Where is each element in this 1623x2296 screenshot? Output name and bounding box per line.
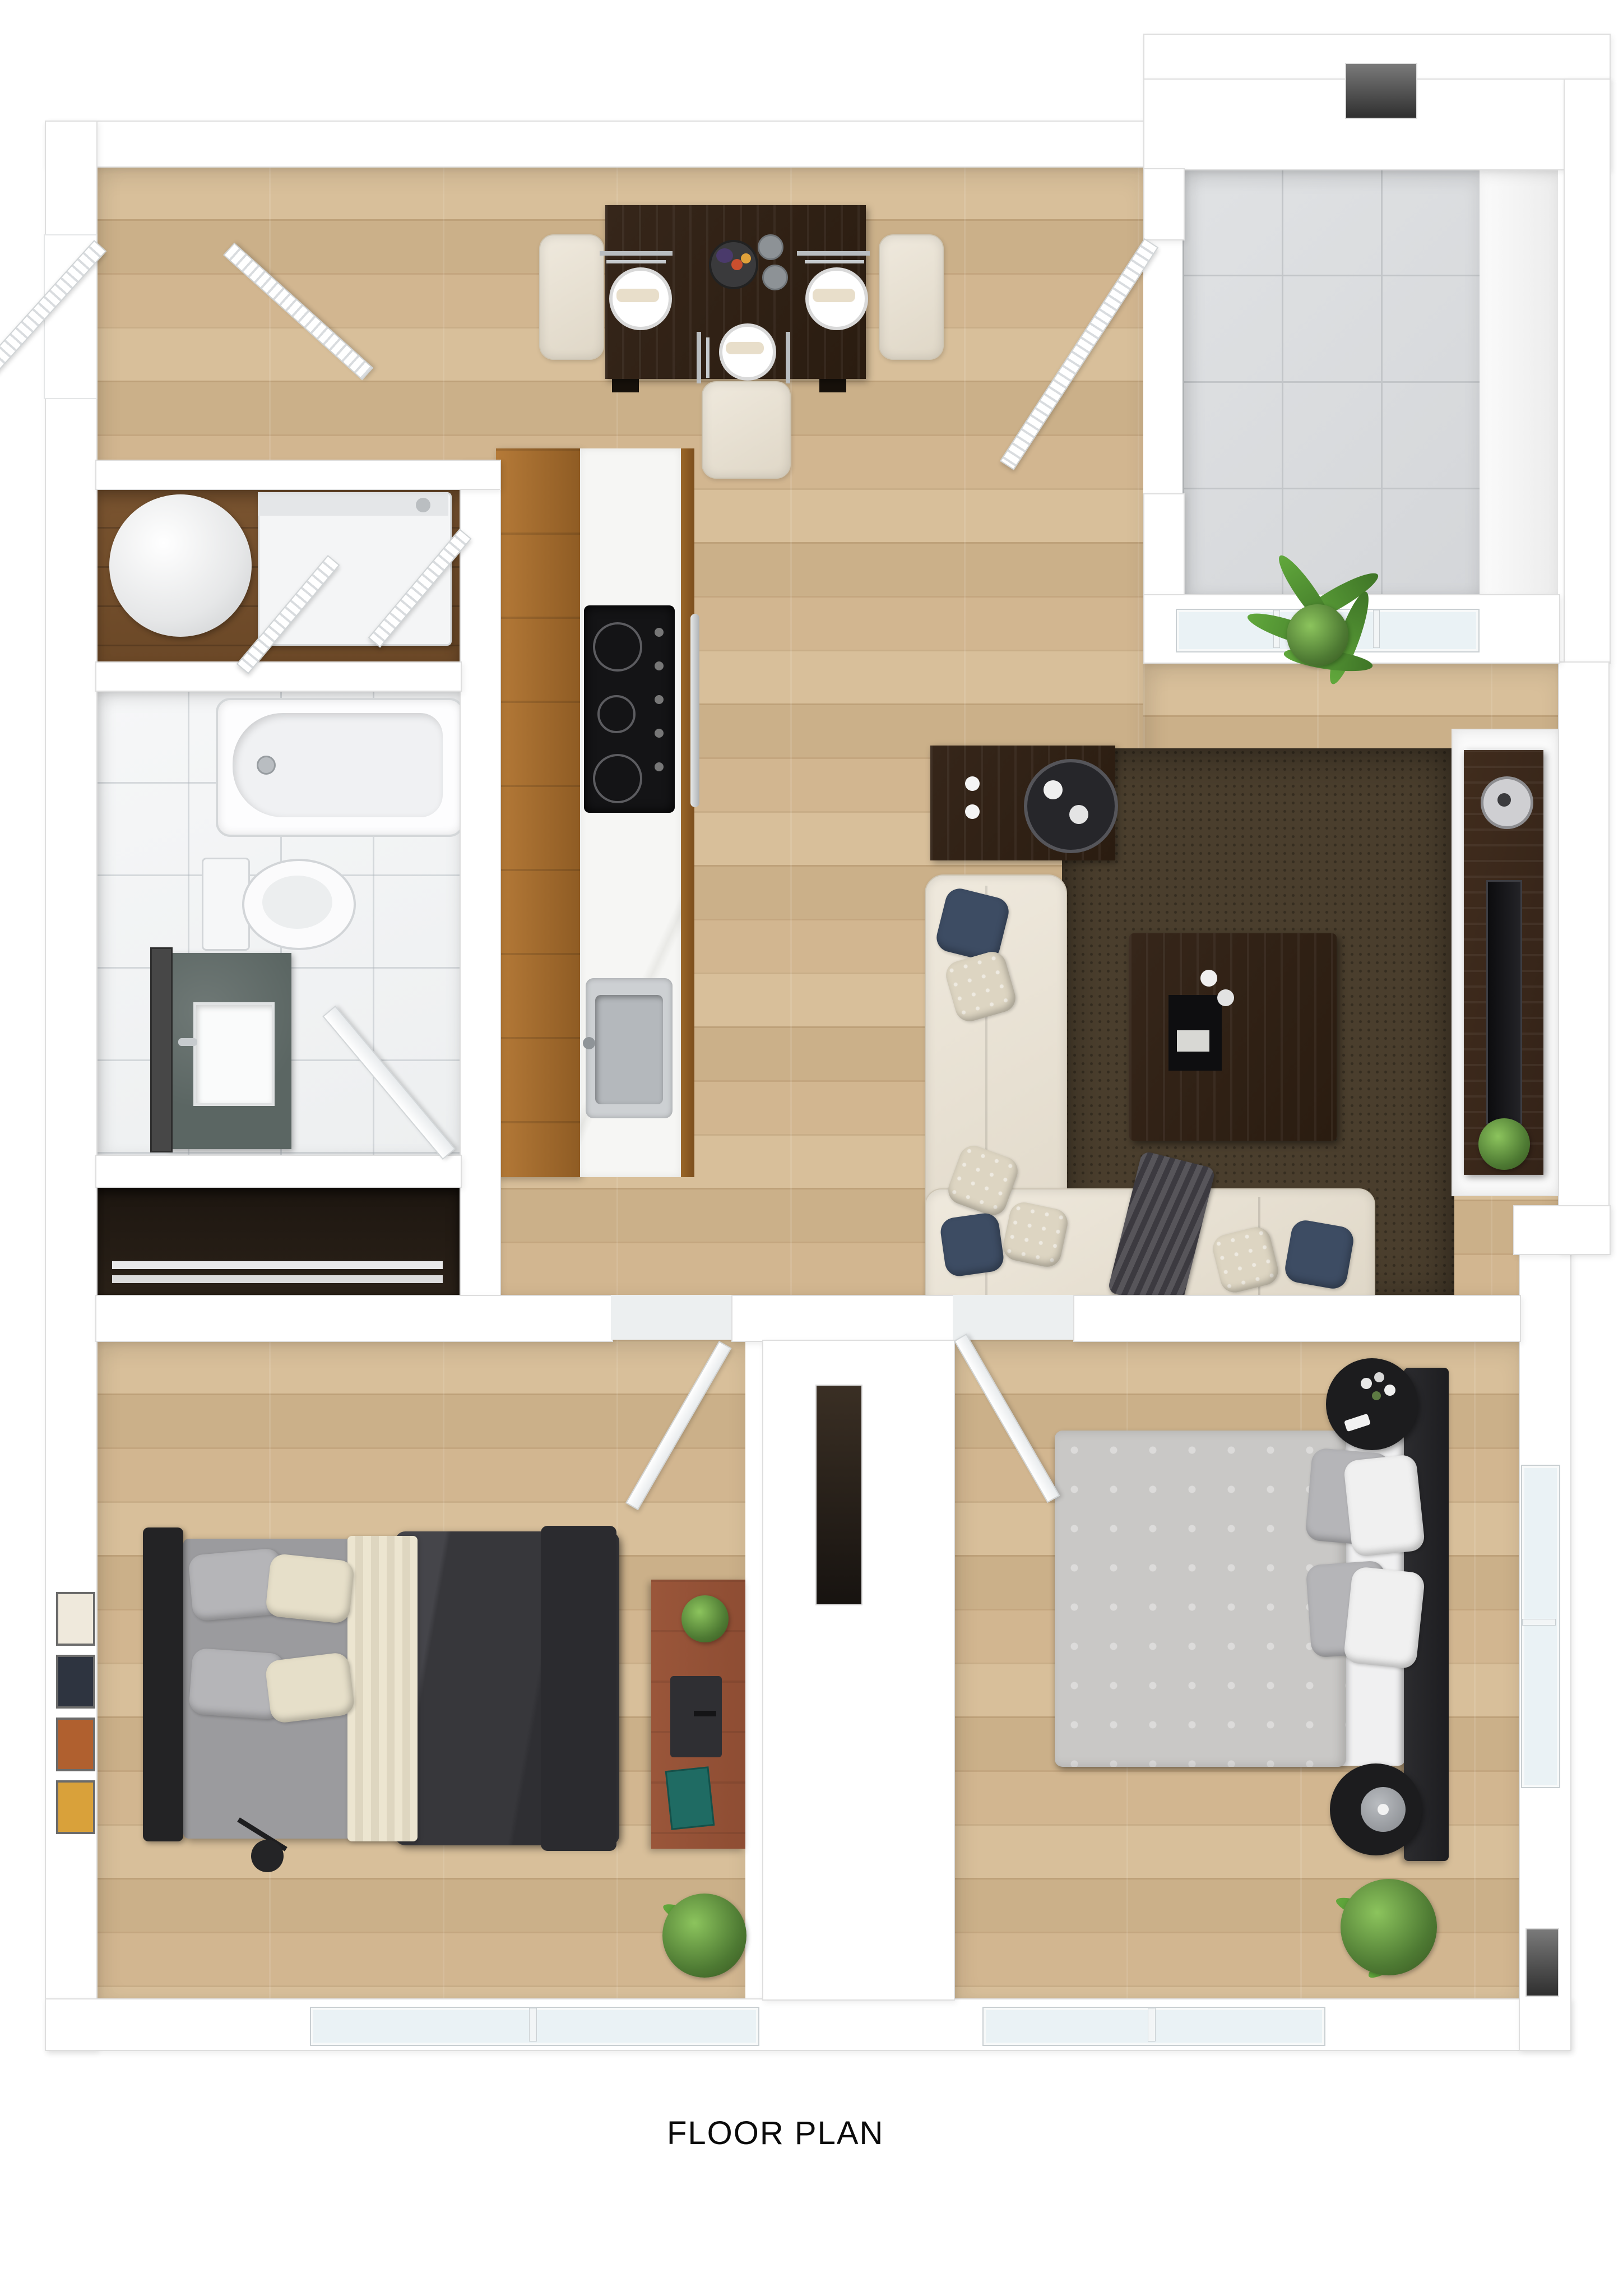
wall-step-cap [1513,1205,1611,1255]
wall-bottom [45,1998,1571,2051]
cooktop-knob [655,661,664,670]
counter-edge [681,448,694,1177]
grapes [716,248,733,263]
faucet [178,1038,197,1046]
knit-blanket [347,1536,418,1841]
monitor-stand [694,1711,716,1716]
cutlery [706,337,710,378]
cutlery [797,251,870,256]
lamp-finial [1378,1804,1389,1815]
wall-balcony-inner-lower [1143,493,1185,596]
wall-art-3 [56,1718,95,1771]
cooktop-knob [655,695,664,704]
wall-utility-bottom [95,661,462,692]
napkin [616,289,659,302]
wall-recess-bottom-right [1525,1928,1559,1997]
apple [741,253,751,263]
cutlery [786,332,790,383]
cup [1069,805,1088,824]
wall-divider-a [95,1295,613,1342]
wall-top [45,121,1146,168]
cutlery [805,260,864,263]
napkin [726,342,764,354]
cup [1200,970,1217,987]
wall-divider-c [1073,1295,1521,1342]
desk-plant [681,1595,729,1642]
bedroom1-plant [662,1894,746,1978]
speaker-cone [1497,793,1511,807]
cutlery [606,260,666,263]
closet-track [112,1261,443,1269]
balcony-plant [1287,604,1348,666]
wall-right-living-bumpout [1558,661,1610,1252]
reading-lamp [251,1840,284,1872]
throw-pillow-navy [1283,1218,1356,1291]
balcony-tile-floor [1183,168,1480,594]
wall-utility-top [95,460,501,490]
wall-balcony-inner-upper [1143,168,1185,240]
doorway-bedroom1 [611,1295,731,1340]
napkin [813,289,855,302]
glass [758,234,783,260]
wall-art-2 [56,1655,95,1709]
flower-leaf [1372,1391,1381,1400]
cooktop-knob [655,762,664,771]
window-mullion [1373,610,1380,648]
cooktop-knob [655,729,664,738]
flower [1374,1372,1384,1382]
closet-track [112,1275,443,1283]
desk-monitor [670,1676,722,1757]
tray [1024,759,1118,853]
walk-in-closet-slot [815,1385,862,1605]
cutlery [697,332,701,383]
washer-knob [416,498,430,512]
parapet-vent-notch [1345,63,1417,119]
toilet-seat [262,876,332,929]
tv [1486,880,1522,1124]
candle [965,804,980,819]
candle [965,776,980,791]
headboard-bedroom1 [143,1527,183,1841]
wall-divider-b [731,1295,955,1342]
burner [593,754,642,803]
kitchen-cabinets [496,448,580,1177]
mirror [150,947,173,1152]
cutlery [600,251,673,256]
nightstand-top [1326,1358,1418,1450]
cup [1044,780,1063,799]
oven-handle [690,614,699,807]
window-mullion [1522,1619,1556,1626]
sink-basin [595,995,663,1104]
tub-drain [257,756,276,775]
bedroom2-side-window [1522,1466,1559,1787]
balcony-wall-face [1480,168,1558,594]
burner [597,695,636,733]
window-mullion [1148,2008,1156,2042]
doorway-bedroom2 [953,1295,1073,1340]
dining-chair-left [539,234,604,360]
wall-art-1 [56,1592,95,1646]
dining-chair-right [879,234,944,360]
glass [762,265,788,290]
vanity-sink [193,1002,275,1106]
cup [1217,989,1234,1006]
dining-chair-bottom [702,381,791,479]
floor-plan-image: FLOOR PLAN [0,0,1623,2296]
pillow-white [1343,1454,1425,1558]
flower [1384,1385,1395,1396]
wall-bathroom-bottom [95,1155,462,1188]
cooktop-knob [655,628,664,637]
flower [1361,1378,1372,1389]
desk-book [665,1766,715,1830]
page-title: FLOOR PLAN [667,2114,884,2152]
wall-right-balcony [1564,78,1611,664]
duvet-fold [541,1526,616,1851]
console-plant [1478,1118,1530,1170]
duvet-patterned [1055,1431,1346,1767]
bedroom2-plant [1341,1879,1437,1975]
pillow-cream [265,1651,356,1724]
coffee-table [1129,933,1337,1141]
pillow-cream [265,1553,355,1624]
wall-bath-right [460,460,501,1297]
faucet [583,1037,595,1049]
pillow-white [1343,1566,1425,1670]
burner [593,622,642,672]
magazine [1177,1030,1209,1052]
water-heater [109,494,252,637]
window-mullion [529,2008,537,2042]
wall-art-4 [56,1780,95,1834]
throw-pillow-navy [939,1211,1005,1278]
